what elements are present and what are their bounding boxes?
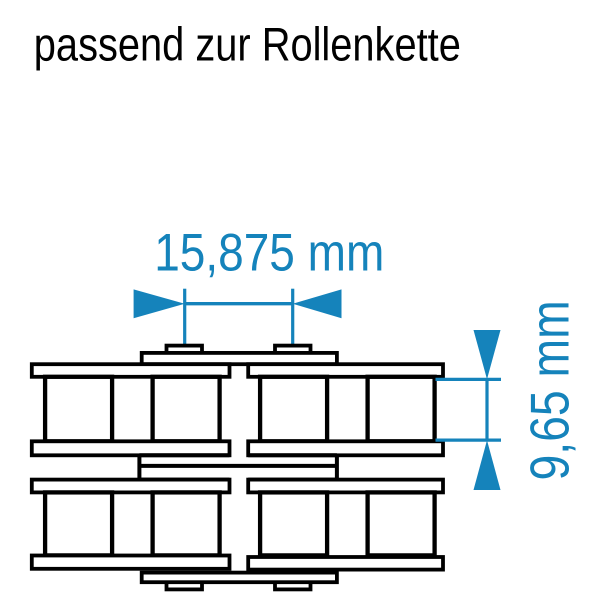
- svg-text:15,875 mm: 15,875 mm: [154, 222, 384, 282]
- svg-text:passend zur Rollenkette: passend zur Rollenkette: [34, 19, 461, 71]
- svg-text:9,65 mm: 9,65 mm: [519, 300, 580, 480]
